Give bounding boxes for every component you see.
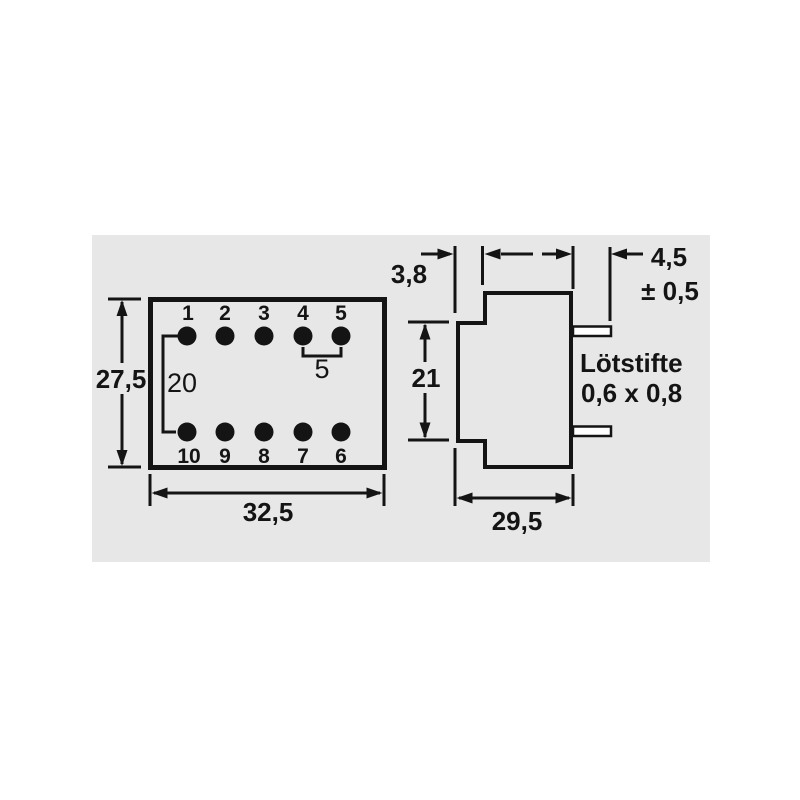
pin-number: 8	[258, 445, 270, 468]
dim-label: 29,5	[492, 506, 543, 536]
transformer-dimension-drawing: 1 2 3 4 5 10 9 8 7 6 20 5	[0, 0, 800, 800]
pin-number: 5	[335, 302, 347, 325]
pin-number: 10	[177, 445, 200, 468]
solder-pin-note-line2: 0,6 x 0,8	[581, 378, 682, 408]
pin-number: 4	[297, 302, 309, 325]
solder-pin-note-line1: Lötstifte	[580, 348, 683, 378]
pin-number: 6	[335, 445, 347, 468]
dim-label: 21	[412, 363, 441, 393]
pin	[178, 423, 197, 442]
pin	[255, 327, 274, 346]
pin	[255, 423, 274, 442]
dim-label: 27,5	[96, 364, 147, 394]
pin	[216, 327, 235, 346]
pin	[178, 327, 197, 346]
pin-number: 2	[219, 302, 231, 325]
solder-pin-note: Lötstifte 0,6 x 0,8	[580, 348, 683, 408]
solder-pin-bottom	[573, 427, 611, 437]
dim-label: 20	[167, 368, 197, 398]
pin-number: 1	[182, 302, 194, 325]
pin	[332, 423, 351, 442]
dim-label: 3,8	[391, 259, 427, 289]
pin-number: 9	[219, 445, 231, 468]
dim-label: 4,5	[651, 242, 687, 272]
solder-pin-top	[573, 327, 611, 337]
dim-label: 32,5	[243, 497, 294, 527]
dim-tolerance-label: ± 0,5	[641, 276, 699, 306]
pin	[216, 423, 235, 442]
pin-number: 3	[258, 302, 270, 325]
pin	[332, 327, 351, 346]
dim-label: 5	[314, 354, 329, 384]
pin	[294, 423, 313, 442]
pin-number: 7	[297, 445, 309, 468]
pin	[294, 327, 313, 346]
